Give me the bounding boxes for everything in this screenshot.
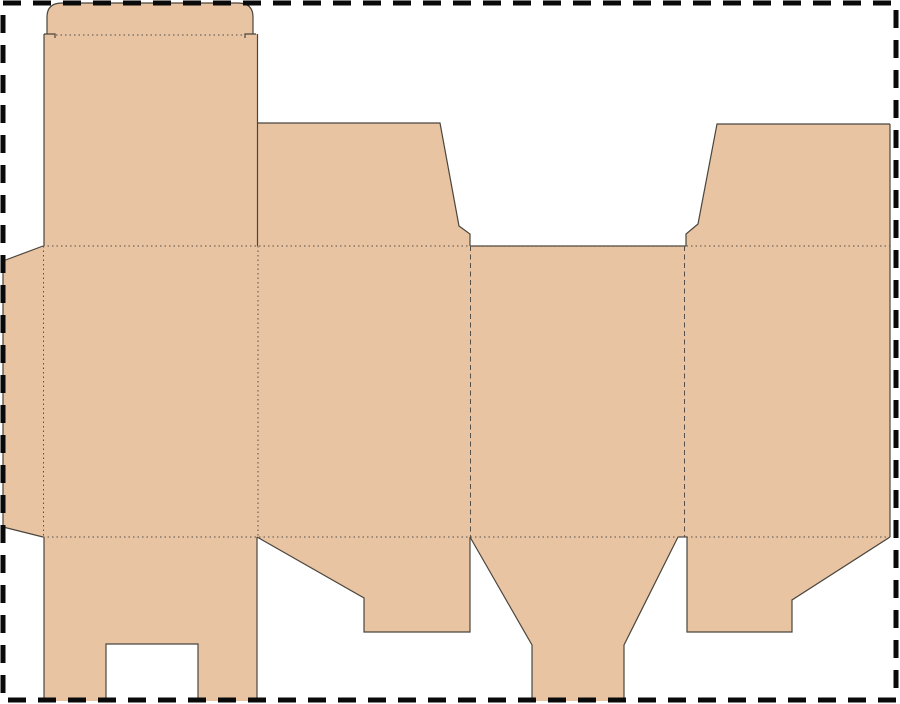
- tuck-flap: [47, 3, 253, 34]
- top-flap-right: [686, 124, 890, 246]
- dieline-stage: [0, 0, 900, 704]
- top-flap-left: [258, 123, 470, 246]
- glue-tab: [3, 246, 43, 537]
- top-back-panel: [44, 34, 258, 246]
- box-dieline-svg: [0, 0, 900, 704]
- body-band: [43, 246, 890, 537]
